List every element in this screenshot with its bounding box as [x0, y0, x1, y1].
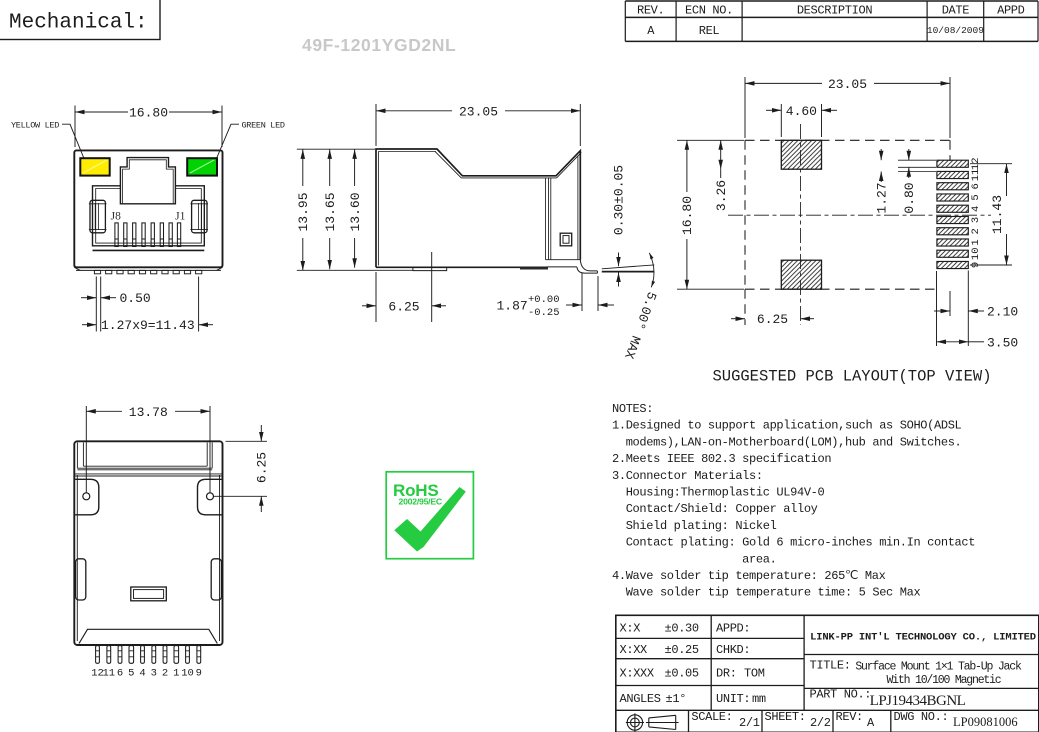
- svg-text:3.26: 3.26: [714, 180, 729, 211]
- svg-text:YELLOW LED: YELLOW LED: [11, 120, 59, 130]
- svg-text:6: 6: [970, 183, 982, 189]
- svg-text:X:XX: X:XX: [620, 643, 648, 657]
- svg-text:LINK-PP INT'L TECHNOLOGY CO.,: LINK-PP INT'L TECHNOLOGY CO., LIMITED: [810, 632, 1036, 644]
- svg-text:±0.05: ±0.05: [665, 667, 699, 681]
- svg-text:10/08/2009: 10/08/2009: [927, 25, 984, 36]
- svg-text:SHEET:: SHEET:: [765, 710, 806, 724]
- svg-text:Shield plating: Nickel: Shield plating: Nickel: [612, 519, 777, 533]
- svg-text:1.27: 1.27: [875, 182, 890, 213]
- svg-text:ANGLES: ANGLES: [620, 692, 661, 706]
- svg-text:0.30±0.05: 0.30±0.05: [612, 165, 627, 235]
- svg-text:9: 9: [196, 668, 202, 680]
- svg-text:PART NO.:: PART NO.:: [810, 688, 872, 702]
- svg-text:1: 1: [970, 239, 982, 245]
- svg-text:5: 5: [128, 668, 134, 680]
- svg-text:UNIT:: UNIT:: [716, 692, 750, 706]
- svg-text:±1°: ±1°: [666, 692, 687, 706]
- svg-text:6.25: 6.25: [757, 312, 788, 327]
- svg-text:23.05: 23.05: [828, 77, 867, 92]
- svg-text:6.25: 6.25: [255, 452, 270, 483]
- svg-text:+0.00: +0.00: [528, 294, 560, 306]
- svg-text:16.80: 16.80: [680, 196, 695, 235]
- svg-text:4.60: 4.60: [786, 104, 817, 119]
- svg-text:ECN NO.: ECN NO.: [685, 4, 733, 18]
- svg-text:0.50: 0.50: [120, 291, 151, 306]
- svg-text:SUGGESTED PCB LAYOUT(TOP VIEW): SUGGESTED PCB LAYOUT(TOP VIEW): [712, 368, 991, 386]
- svg-text:11.43: 11.43: [990, 195, 1005, 234]
- svg-text:5: 5: [970, 194, 982, 200]
- svg-text:Surface Mount 1×1 Tab-Up Jack: Surface Mount 1×1 Tab-Up Jack: [855, 661, 1022, 674]
- svg-text:10: 10: [181, 668, 194, 680]
- svg-text:TOM: TOM: [744, 667, 765, 681]
- svg-text:23.05: 23.05: [459, 104, 498, 119]
- svg-text:LPJ19434BGNL: LPJ19434BGNL: [870, 693, 966, 709]
- svg-text:J8: J8: [111, 211, 121, 223]
- svg-text:0.80: 0.80: [902, 182, 917, 213]
- svg-text:A: A: [647, 24, 655, 38]
- svg-text:REV.: REV.: [637, 4, 664, 18]
- svg-text:1: 1: [173, 668, 179, 680]
- svg-text:10: 10: [970, 247, 982, 260]
- svg-text:Mechanical:: Mechanical:: [9, 12, 148, 35]
- svg-text:Contact plating: Gold 6 micro-: Contact plating: Gold 6 micro-inches min…: [612, 536, 975, 550]
- svg-text:Wave solder tip temperature ti: Wave solder tip temperature time: 5 Sec …: [612, 586, 920, 600]
- svg-text:TITLE:: TITLE:: [810, 659, 851, 673]
- svg-text:With 10/100 Magnetic: With 10/100 Magnetic: [886, 674, 1001, 687]
- svg-text:11: 11: [970, 169, 982, 182]
- svg-text:2: 2: [970, 228, 982, 234]
- svg-text:11: 11: [102, 668, 115, 680]
- svg-text:3: 3: [151, 668, 157, 680]
- svg-text:4: 4: [970, 206, 982, 212]
- svg-text:±0.25: ±0.25: [665, 643, 699, 657]
- svg-text:±0.30: ±0.30: [665, 622, 699, 636]
- svg-text:X:XXX: X:XXX: [620, 667, 654, 681]
- svg-text:A: A: [867, 716, 875, 730]
- svg-text:4: 4: [139, 668, 145, 680]
- svg-text:6: 6: [117, 668, 123, 680]
- svg-text:13.60: 13.60: [348, 192, 363, 231]
- svg-text:2.10: 2.10: [987, 305, 1018, 320]
- svg-text:16.80: 16.80: [129, 106, 168, 121]
- svg-text:REV:: REV:: [836, 710, 863, 724]
- svg-text:modems),LAN-on-Motherboard(LOM: modems),LAN-on-Motherboard(LOM),hub and …: [612, 435, 961, 449]
- svg-text:mm: mm: [752, 692, 766, 706]
- svg-text:13.65: 13.65: [323, 192, 338, 231]
- svg-text:3.Connector Materials:: 3.Connector Materials:: [612, 469, 763, 483]
- svg-text:J1: J1: [175, 211, 185, 223]
- svg-text:DESCRIPTION: DESCRIPTION: [797, 4, 873, 18]
- svg-text:2.Meets IEEE 802.3 specificati: 2.Meets IEEE 802.3 specification: [612, 452, 831, 466]
- svg-text:3: 3: [970, 217, 982, 223]
- svg-text:CHKD:: CHKD:: [716, 643, 750, 657]
- svg-text:49F-1201YGD2NL: 49F-1201YGD2NL: [302, 35, 456, 55]
- svg-text:NOTES:: NOTES:: [612, 402, 653, 416]
- svg-text:Housing:Thermoplastic UL94V-0: Housing:Thermoplastic UL94V-0: [612, 486, 825, 500]
- svg-text:-0.25: -0.25: [528, 307, 560, 319]
- svg-text:DWG NO.:: DWG NO.:: [894, 710, 949, 724]
- svg-text:1.87: 1.87: [497, 299, 528, 314]
- svg-text:area.: area.: [612, 552, 776, 566]
- svg-text:3.50: 3.50: [987, 335, 1018, 350]
- svg-text:2/2: 2/2: [810, 716, 831, 730]
- svg-text:DR:: DR:: [716, 667, 737, 681]
- svg-text:2: 2: [162, 668, 168, 680]
- svg-text:SCALE:: SCALE:: [691, 710, 732, 724]
- svg-text:LP09081006: LP09081006: [953, 715, 1018, 729]
- svg-text:X:X: X:X: [620, 622, 641, 636]
- svg-text:Contact/Shield: Copper alloy: Contact/Shield: Copper alloy: [612, 502, 818, 516]
- svg-text:13.95: 13.95: [296, 192, 311, 231]
- svg-text:4.Wave solder tip temperature:: 4.Wave solder tip temperature: 265℃ Max: [612, 569, 886, 583]
- svg-text:1.Designed to support applicat: 1.Designed to support application,such a…: [612, 419, 962, 433]
- svg-text:1.27x9=11.43: 1.27x9=11.43: [101, 318, 195, 333]
- svg-text:13.78: 13.78: [129, 405, 168, 420]
- svg-text:APPD: APPD: [997, 4, 1025, 18]
- svg-text:GREEN LED: GREEN LED: [242, 120, 285, 130]
- svg-text:REL: REL: [699, 24, 720, 38]
- svg-text:6.25: 6.25: [388, 299, 419, 314]
- svg-text:2002/95/EC: 2002/95/EC: [399, 497, 443, 507]
- svg-text:2/1: 2/1: [739, 716, 760, 730]
- svg-text:APPD:: APPD:: [716, 622, 750, 636]
- svg-text:DATE: DATE: [942, 4, 970, 18]
